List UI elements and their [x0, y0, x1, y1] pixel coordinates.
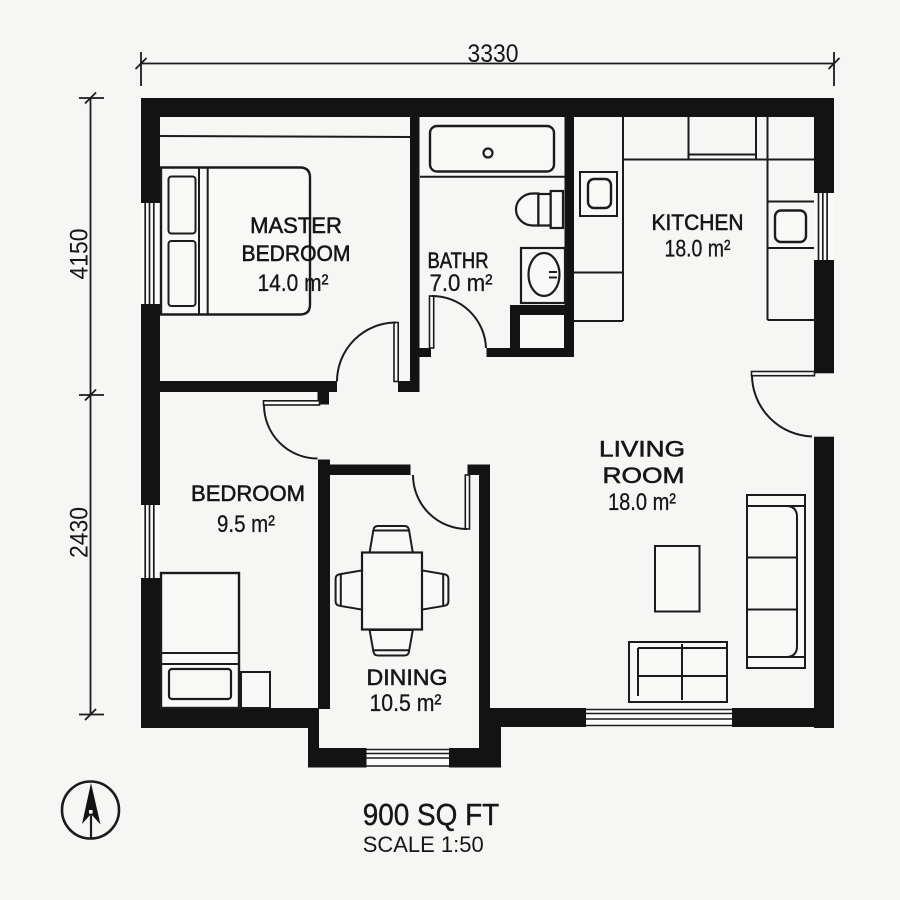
- svg-text:2430: 2430: [66, 507, 94, 558]
- svg-text:18.0 m²: 18.0 m²: [665, 236, 731, 263]
- svg-text:14.0 m²: 14.0 m²: [258, 270, 329, 297]
- svg-text:MASTER: MASTER: [250, 213, 342, 238]
- svg-text:10.5 m²: 10.5 m²: [370, 690, 442, 717]
- svg-text:KITCHEN: KITCHEN: [652, 210, 744, 235]
- svg-text:4150: 4150: [66, 229, 94, 280]
- svg-text:7.0 m²: 7.0 m²: [430, 270, 493, 297]
- svg-text:SCALE 1:50: SCALE 1:50: [363, 832, 484, 857]
- svg-text:3330: 3330: [468, 40, 519, 68]
- svg-text:9.5 m²: 9.5 m²: [217, 511, 275, 538]
- svg-text:900 SQ FT: 900 SQ FT: [363, 797, 500, 832]
- svg-text:DINING: DINING: [367, 665, 448, 690]
- svg-text:BEDROOM: BEDROOM: [242, 241, 351, 266]
- svg-text:18.0 m²: 18.0 m²: [608, 489, 676, 516]
- svg-text:LIVING: LIVING: [599, 437, 685, 462]
- svg-text:BEDROOM: BEDROOM: [191, 481, 305, 506]
- svg-text:ROOM: ROOM: [603, 463, 685, 488]
